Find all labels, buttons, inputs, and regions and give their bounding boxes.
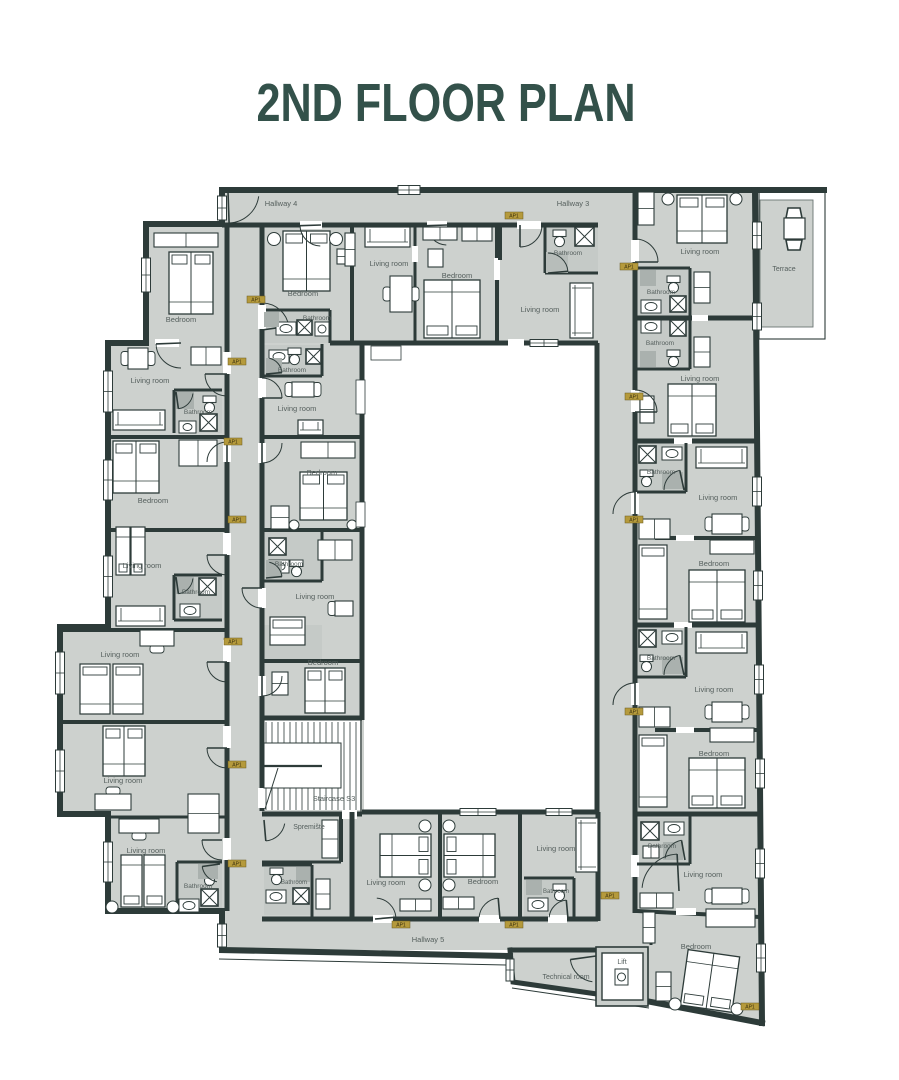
svg-text:Bathroom: Bathroom [278,367,306,374]
svg-text:Bedroom: Bedroom [468,877,498,886]
svg-text:Bathroom: Bathroom [554,250,582,257]
svg-text:Bathroom: Bathroom [182,589,210,596]
svg-text:Living room: Living room [278,404,317,413]
svg-text:AP1: AP1 [745,1005,755,1011]
svg-text:Terrace: Terrace [772,266,795,273]
svg-text:Hallway 3: Hallway 3 [557,199,590,208]
svg-text:Bathroom: Bathroom [648,843,676,850]
svg-text:Bathroom: Bathroom [281,880,307,886]
svg-text:Bedroom: Bedroom [307,468,337,477]
svg-text:AP1: AP1 [232,763,242,769]
svg-text:AP1: AP1 [228,640,238,646]
svg-text:Living room: Living room [699,493,738,502]
svg-text:Living room: Living room [104,776,143,785]
svg-text:Living room: Living room [296,592,335,601]
svg-text:Living room: Living room [521,305,560,314]
svg-text:Living room: Living room [684,870,723,879]
svg-text:Hallway 5: Hallway 5 [412,935,445,944]
svg-text:Bathroom: Bathroom [647,469,675,476]
svg-text:Living room: Living room [370,259,409,268]
svg-text:AP1: AP1 [629,395,639,401]
svg-text:Bedroom: Bedroom [699,749,729,758]
svg-text:Bathroom: Bathroom [303,315,331,322]
svg-text:Living room: Living room [681,247,720,256]
svg-text:AP1: AP1 [396,923,406,929]
svg-text:Bathroom: Bathroom [184,883,212,890]
svg-text:Bathroom: Bathroom [647,289,675,296]
svg-text:Living room: Living room [367,878,406,887]
svg-text:Bedroom: Bedroom [699,559,729,568]
svg-text:Staircase S3: Staircase S3 [313,794,356,803]
svg-text:Living room: Living room [127,846,166,855]
svg-text:Bathroom: Bathroom [184,409,212,416]
svg-text:AP1: AP1 [629,710,639,716]
svg-text:AP1: AP1 [624,265,634,271]
svg-text:AP1: AP1 [509,214,519,220]
svg-text:Living room: Living room [537,844,576,853]
svg-text:Spremište: Spremište [293,824,325,831]
svg-text:Living room: Living room [681,374,720,383]
svg-text:AP1: AP1 [232,862,242,868]
svg-text:Living room: Living room [131,376,170,385]
svg-text:2ND FLOOR PLAN: 2ND FLOOR PLAN [256,74,635,134]
svg-text:AP1: AP1 [251,298,261,304]
svg-text:Bedroom: Bedroom [166,315,196,324]
svg-text:AP1: AP1 [629,518,639,524]
svg-text:Bedroom: Bedroom [442,271,472,280]
svg-text:AP1: AP1 [232,518,242,524]
svg-text:Living room: Living room [695,685,734,694]
svg-text:AP1: AP1 [228,440,238,446]
svg-text:Hallway 4: Hallway 4 [265,199,298,208]
svg-text:AP1: AP1 [509,923,519,929]
svg-text:Bedroom: Bedroom [681,942,711,951]
svg-text:Bedroom: Bedroom [308,658,338,667]
svg-text:AP1: AP1 [605,894,615,900]
svg-text:Bathroom: Bathroom [646,340,674,347]
svg-text:Technical room: Technical room [542,974,589,981]
svg-text:Bathroom: Bathroom [543,889,569,895]
svg-text:Bedroom: Bedroom [288,289,318,298]
svg-text:Bathroom: Bathroom [647,655,675,662]
svg-text:Living room: Living room [123,561,162,570]
svg-text:Lift: Lift [617,959,626,966]
svg-text:AP1: AP1 [232,360,242,366]
svg-text:Bathroom: Bathroom [275,561,303,568]
svg-text:Living room: Living room [101,650,140,659]
svg-text:Bedroom: Bedroom [138,496,168,505]
